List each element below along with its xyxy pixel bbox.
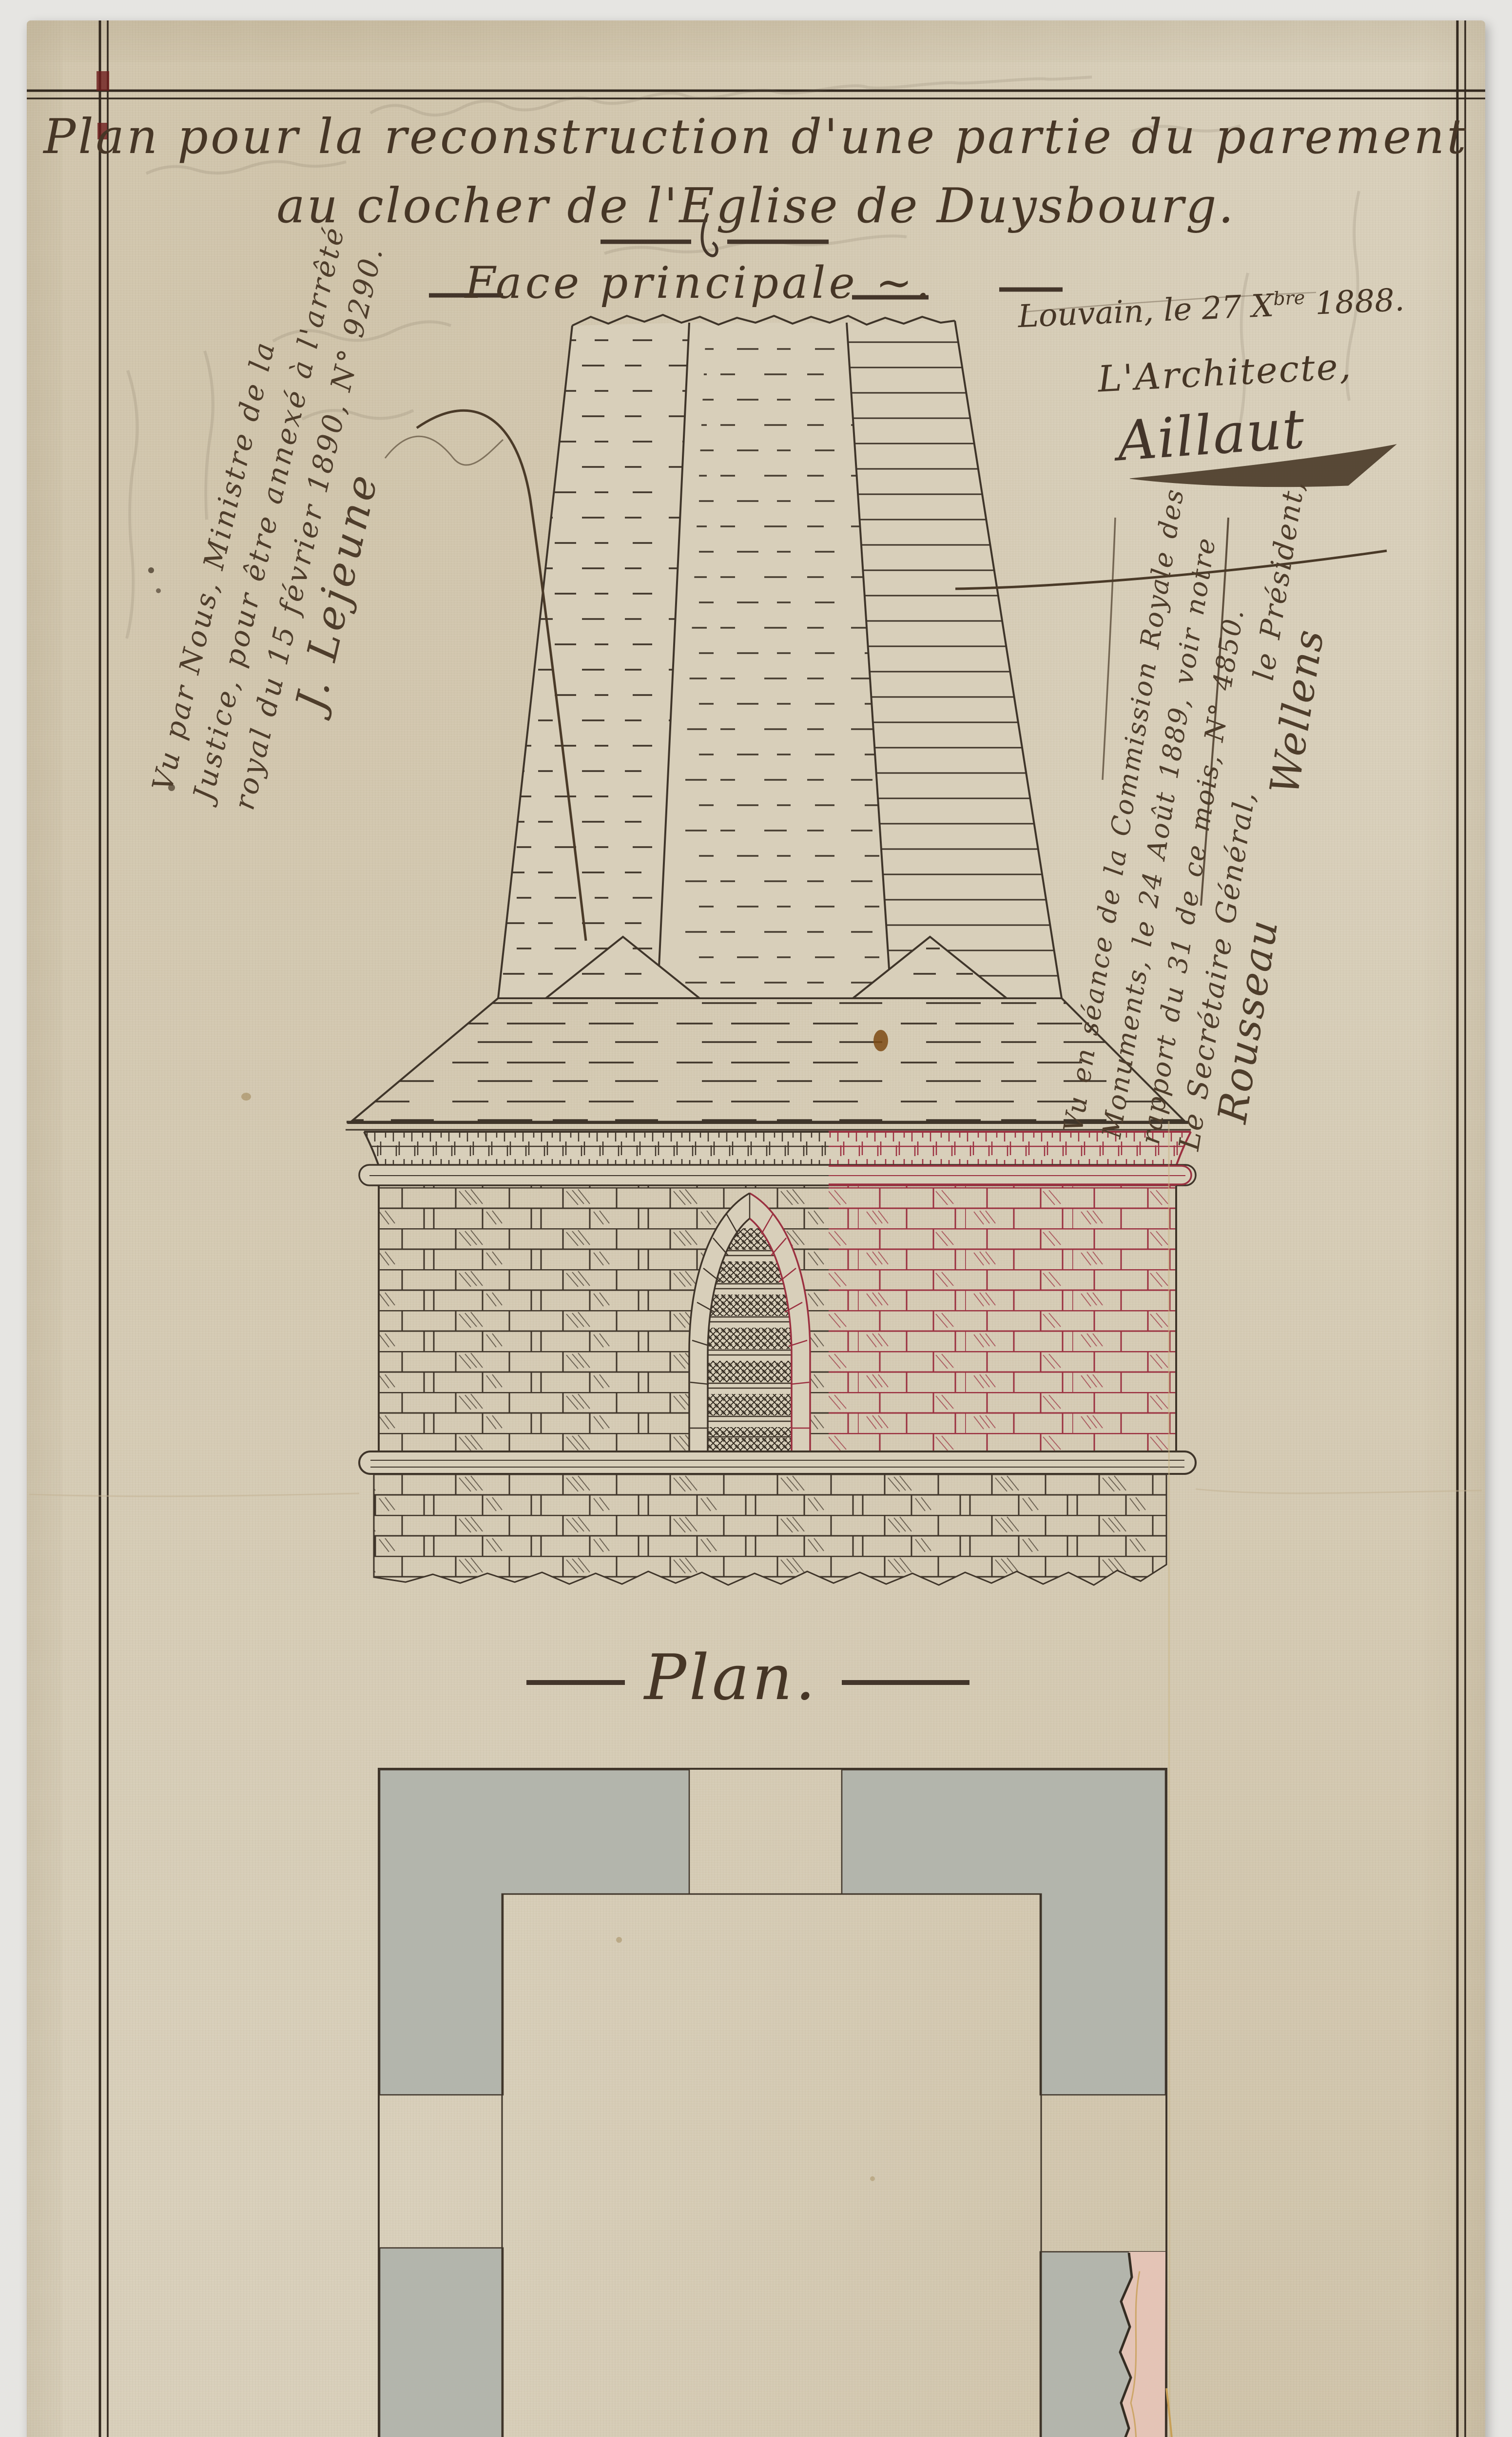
lower-masonry xyxy=(374,1474,1166,1585)
string-course xyxy=(359,1451,1196,1474)
plan-wall-corners xyxy=(380,1770,1165,2437)
torus-moulding xyxy=(359,1165,1196,1185)
date-superscript: bre xyxy=(1273,287,1305,309)
cornice xyxy=(364,1132,1191,1167)
architect-signature: Aillaut xyxy=(1115,397,1307,474)
elevation-caption: Face principale ~. xyxy=(465,257,933,309)
plan-caption: Plan. xyxy=(644,1642,818,1714)
scanned-architectural-drawing: Plan pour la reconstruction d'une partie… xyxy=(0,0,1512,2437)
document-title-line2: au clocher de l'Eglise de Duysbourg. xyxy=(0,178,1512,234)
document-title-line1: Plan pour la reconstruction d'une partie… xyxy=(0,109,1512,165)
plan-inner-square xyxy=(502,1894,1041,2437)
date-suffix: 1888. xyxy=(1304,282,1405,323)
plan-drawing xyxy=(379,1769,1176,2437)
